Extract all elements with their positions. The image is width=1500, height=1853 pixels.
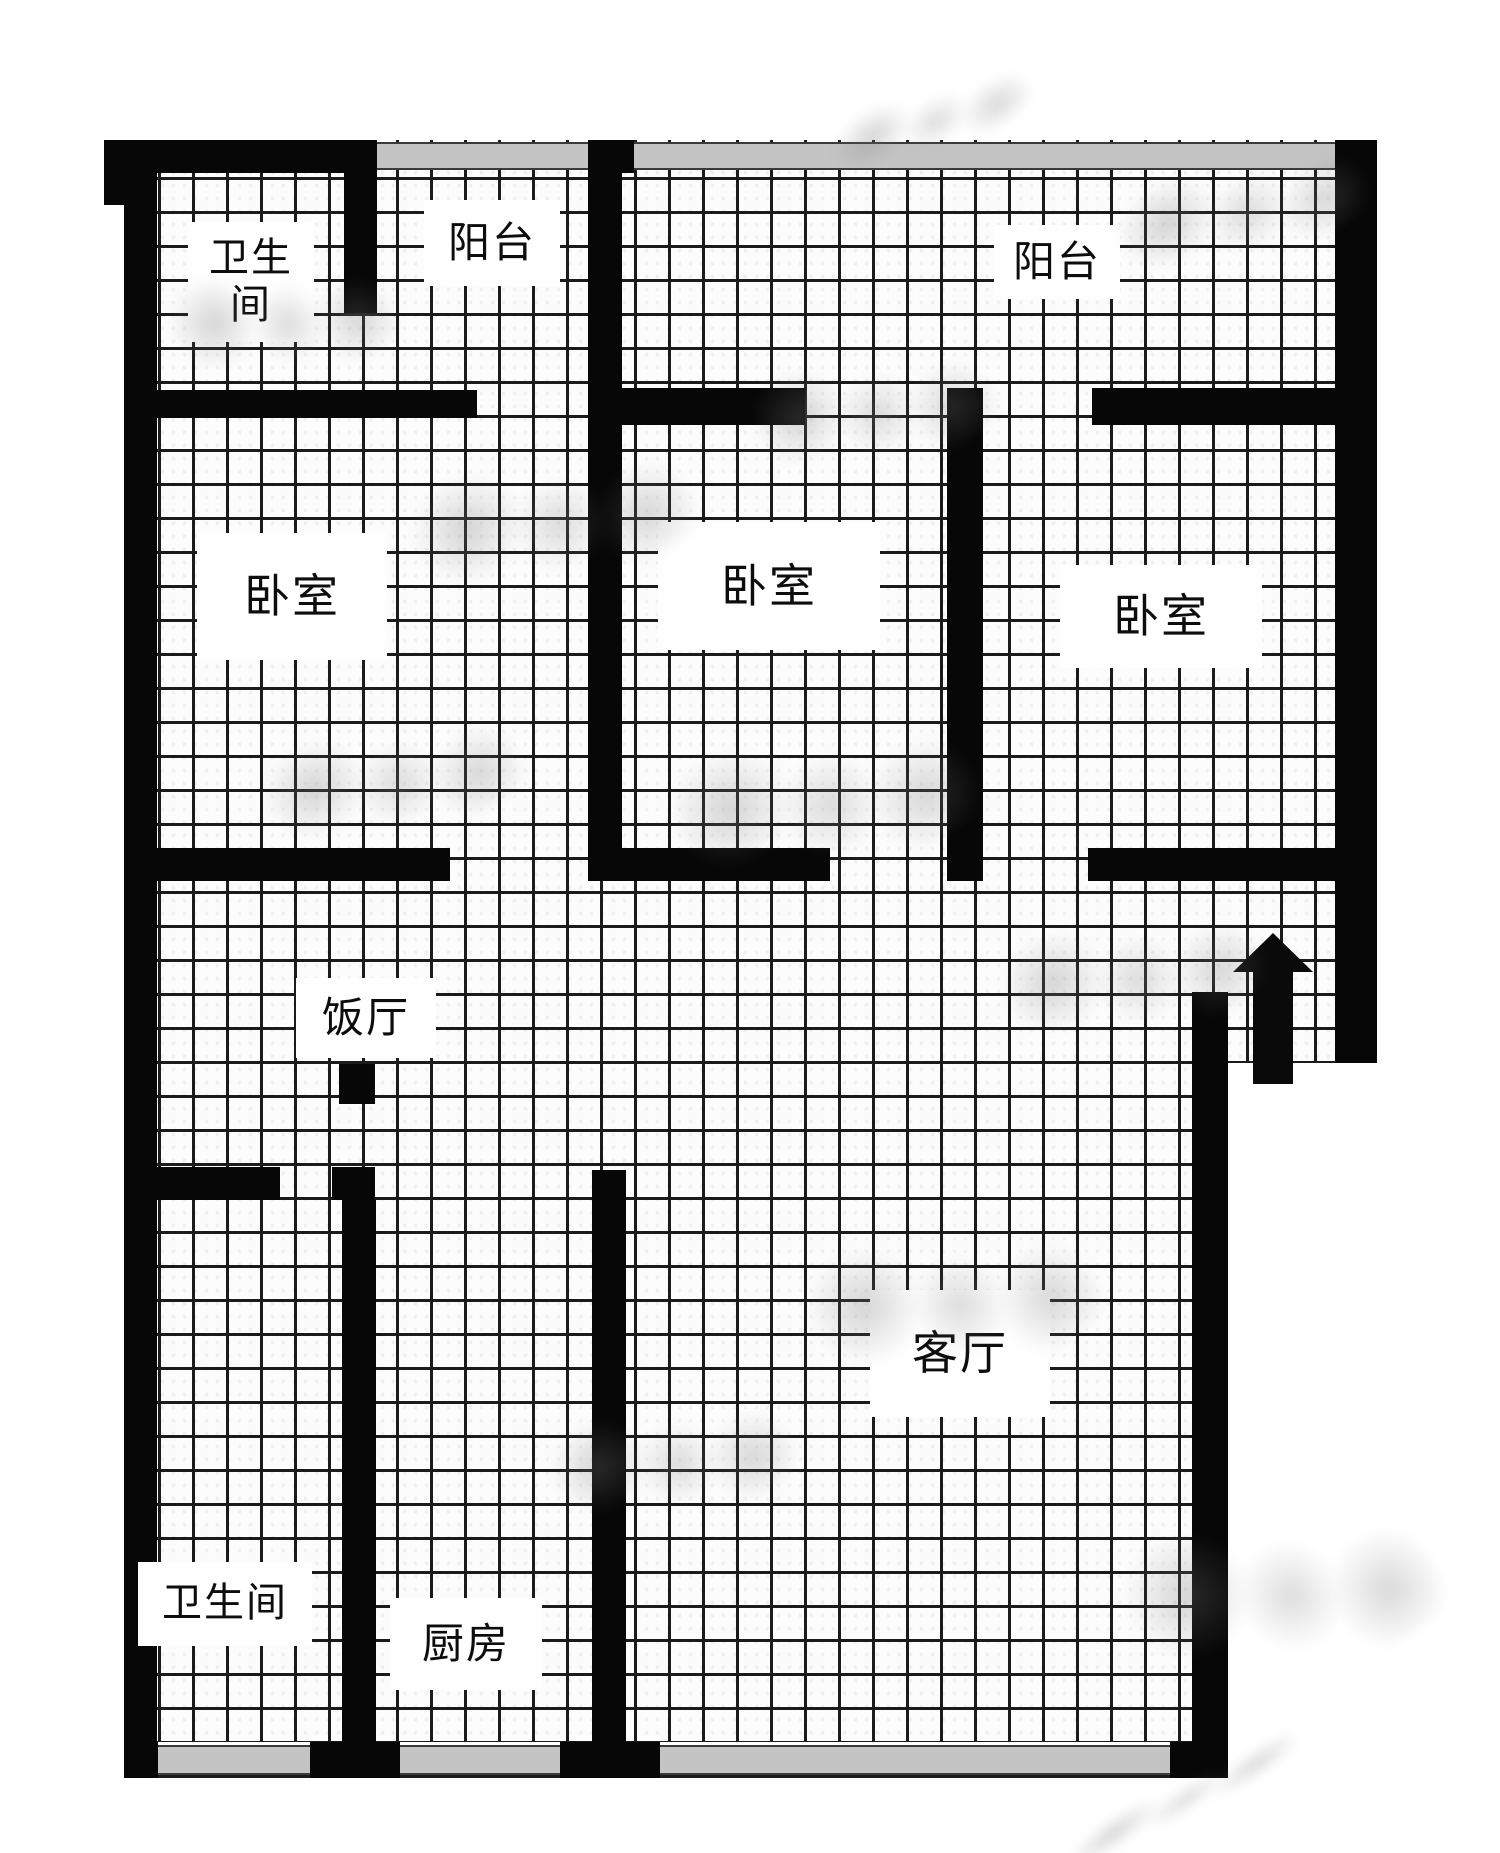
room-label-text: 饭厅 bbox=[322, 993, 410, 1043]
window-strip bbox=[660, 1745, 1170, 1775]
window-strip bbox=[158, 1745, 310, 1775]
wall-segment bbox=[1335, 140, 1377, 1063]
room-label-living-room: 客厅 bbox=[870, 1290, 1050, 1417]
window-strip bbox=[400, 1745, 560, 1775]
room-label-text: 卧室 bbox=[1113, 589, 1209, 643]
room-label-text: 阳台 bbox=[1013, 237, 1101, 287]
wall-segment bbox=[344, 140, 377, 313]
wall-segment bbox=[124, 848, 450, 881]
wall-segment bbox=[124, 140, 376, 173]
wall-segment bbox=[342, 1200, 376, 1743]
room-label-text: 阳台 bbox=[448, 218, 536, 268]
wall-segment bbox=[560, 1742, 660, 1778]
room-label-text: 卫生 bbox=[209, 235, 293, 282]
floor-plan-page: 卫生间阳台阳台卧室卧室卧室饭厅客厅卫生间厨房 bbox=[0, 0, 1500, 1853]
window-strip bbox=[376, 142, 600, 170]
room-label-balcony-left: 阳台 bbox=[424, 200, 560, 286]
wall-segment bbox=[124, 1167, 280, 1200]
room-label-text: 卫生间 bbox=[162, 1580, 288, 1627]
wall-segment bbox=[592, 1170, 626, 1743]
entrance-arrow-head bbox=[1233, 933, 1313, 972]
room-label-text: 厨房 bbox=[422, 1619, 510, 1669]
room-label-bathroom-top: 卫生间 bbox=[188, 222, 314, 342]
entrance-arrow bbox=[1253, 970, 1293, 1084]
wall-segment bbox=[310, 1742, 400, 1778]
wall-segment bbox=[1170, 1742, 1228, 1778]
wall-segment bbox=[588, 848, 830, 881]
room-label-bedroom-middle: 卧室 bbox=[658, 522, 880, 650]
room-label-bedroom-right: 卧室 bbox=[1060, 565, 1262, 668]
wall-segment bbox=[588, 140, 622, 880]
wall-segment bbox=[947, 388, 983, 881]
outside-mask bbox=[1228, 1063, 1381, 1778]
room-label-bedroom-left: 卧室 bbox=[197, 533, 387, 660]
wall-segment bbox=[124, 390, 477, 418]
wall-segment bbox=[1192, 992, 1228, 1778]
wall-segment bbox=[104, 140, 124, 205]
wall-segment bbox=[332, 1167, 375, 1200]
room-label-text: 间 bbox=[230, 282, 272, 329]
room-label-text: 卧室 bbox=[244, 569, 340, 623]
wall-segment bbox=[1088, 848, 1337, 881]
floor-plan: 卫生间阳台阳台卧室卧室卧室饭厅客厅卫生间厨房 bbox=[124, 140, 1377, 1778]
room-label-text: 卧室 bbox=[721, 559, 817, 613]
wall-segment bbox=[1092, 388, 1337, 425]
room-label-dining-room: 饭厅 bbox=[296, 978, 436, 1058]
wall-segment bbox=[622, 388, 805, 425]
wall-segment bbox=[124, 140, 157, 1778]
room-label-text: 客厅 bbox=[912, 1326, 1008, 1380]
wall-segment bbox=[124, 1742, 158, 1778]
room-label-kitchen: 厨房 bbox=[390, 1598, 542, 1690]
room-label-balcony-right: 阳台 bbox=[994, 225, 1120, 299]
room-label-bathroom-bottom: 卫生间 bbox=[138, 1562, 312, 1646]
window-strip bbox=[634, 142, 1335, 170]
wall-segment bbox=[339, 1064, 375, 1104]
